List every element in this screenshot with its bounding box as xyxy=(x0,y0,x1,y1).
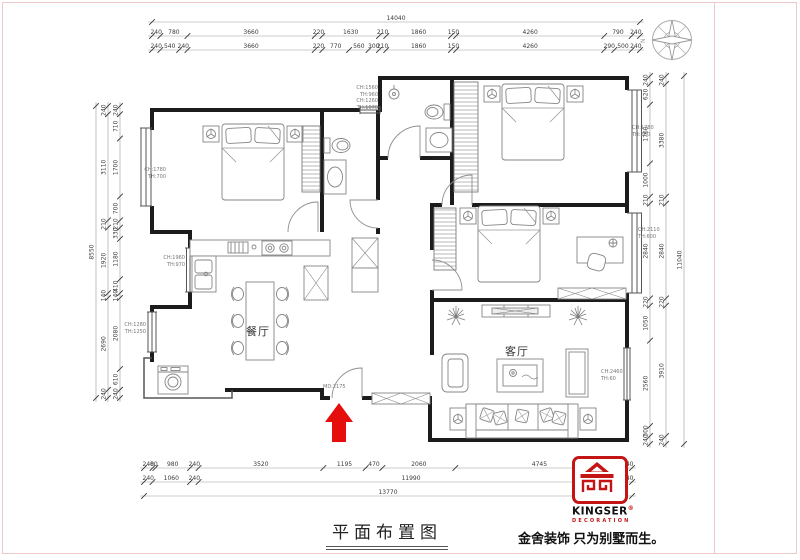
dim-value: 1860 xyxy=(411,29,426,36)
bathroom-middle-group xyxy=(389,85,452,152)
kingser-logo: KINGSER® DECORATION xyxy=(572,456,628,524)
stove-icon xyxy=(262,241,292,255)
annotation-line: CH:1280 xyxy=(122,322,146,329)
dim-row-bottom-0: 240809802403520119547020604745240 xyxy=(140,461,636,471)
dim-value: 14040 xyxy=(386,15,405,22)
dim-row-top-2: 2405402403660220770560300210186015042602… xyxy=(148,43,644,53)
dim-value: 240 xyxy=(143,475,155,482)
dim-value: 780 xyxy=(168,29,180,36)
dim-row-top-0: 14040 xyxy=(148,15,644,25)
dim-value: 210 xyxy=(377,43,389,50)
compass-icon: N xyxy=(640,20,692,60)
dim-value: 2060 xyxy=(411,461,426,468)
logo-mark-icon xyxy=(572,456,628,504)
dim-value: 210 xyxy=(643,194,650,206)
dim-value: 3520 xyxy=(253,461,268,468)
dim-value: 3910 xyxy=(659,363,666,378)
dim-value: 3660 xyxy=(243,29,258,36)
window-annotation-top-middle-window: CH:1560TH:960CH:1260TH:1070 xyxy=(350,85,378,111)
dim-value: 210 xyxy=(659,194,666,206)
dim-value: 11040 xyxy=(677,250,684,269)
dim-value: 240 xyxy=(113,104,120,116)
dim-value: 2690 xyxy=(101,336,108,351)
window-annotation-right-top-window: CH:1780TH:880 xyxy=(632,125,660,138)
window-annotation-kitchen-window: CH:1960TH:970 xyxy=(161,255,185,268)
room-label-dining: 餐厅 xyxy=(246,323,270,339)
dim-row-bottom-2: 13770 xyxy=(140,489,636,499)
dim-value: 330 xyxy=(113,227,120,239)
dim-value: 80 xyxy=(150,461,158,468)
dim-value: 140 xyxy=(113,290,120,302)
dim-value: 220 xyxy=(313,43,325,50)
annotation-line: TH:700 xyxy=(142,174,166,181)
compass-north-label: N xyxy=(640,39,647,44)
dim-value: 240 xyxy=(189,475,201,482)
dim-row-left-2: 240710170070021033011804101402080610240 xyxy=(113,102,123,402)
entry-arrow xyxy=(325,403,353,442)
wardrobe-icon xyxy=(302,126,320,192)
dim-value: 3110 xyxy=(101,159,108,174)
dim-value: 210 xyxy=(377,29,389,36)
dim-value: 240 xyxy=(643,434,650,446)
dim-value: 2560 xyxy=(643,376,650,391)
hall-cabinet-group xyxy=(352,238,378,292)
dim-value: 13770 xyxy=(378,489,397,496)
dim-value: 620 xyxy=(643,88,650,100)
dim-value: 1630 xyxy=(343,29,358,36)
dim-value: 610 xyxy=(113,373,120,385)
window-annotation-dining-window: CH:1280TH:1250 xyxy=(122,322,146,335)
dim-value: 2080 xyxy=(113,326,120,341)
dim-value: 8550 xyxy=(89,244,96,259)
furniture-layer xyxy=(158,82,626,438)
annotation-line: TH:60 xyxy=(601,376,629,383)
entry-group xyxy=(372,393,430,404)
logo-brand-row: KINGSER® xyxy=(572,505,628,518)
dim-row-left-1: 240311021019201402690240 xyxy=(101,102,111,402)
dim-value: 240 xyxy=(150,43,162,50)
logo-subtitle-text: DECORATION xyxy=(572,518,628,524)
dim-value: 240 xyxy=(630,43,642,50)
shower-icon xyxy=(389,89,399,99)
annotation-line: TH:880 xyxy=(632,132,660,139)
annotation-line: TH:970 xyxy=(161,262,185,269)
dim-value: 240 xyxy=(178,43,190,50)
annotation-line: TH:1250 xyxy=(122,329,146,336)
logo-brand-text: KINGSER xyxy=(572,506,628,518)
dim-value: 1700 xyxy=(113,160,120,175)
dim-value: 240 xyxy=(659,74,666,86)
dim-value: 540 xyxy=(164,43,176,50)
room-label-living: 客厅 xyxy=(505,343,529,359)
dim-value: 1195 xyxy=(337,461,352,468)
dim-value: 710 xyxy=(113,120,120,132)
dim-value: 770 xyxy=(330,43,342,50)
dim-row-left-0: 8550 xyxy=(89,102,99,402)
closet-icon xyxy=(454,82,478,192)
plant-icon xyxy=(447,306,465,325)
logo-registered-mark: ® xyxy=(628,505,635,512)
dim-value: 700 xyxy=(113,203,120,215)
dim-value: 2840 xyxy=(643,243,650,258)
living-room-group xyxy=(442,305,596,438)
annotation-line: TH:600 xyxy=(638,234,666,241)
shoe-cabinet-icon xyxy=(372,393,430,404)
dim-row-right-2: 11040 xyxy=(677,72,687,448)
drawing-title: 平面布置图 xyxy=(326,518,448,550)
dim-value: 240 xyxy=(630,29,642,36)
entry-door-label: MD:2175 xyxy=(323,384,346,391)
dim-value: 500 xyxy=(617,43,629,50)
dim-value: 1860 xyxy=(411,43,426,50)
dim-value: 150 xyxy=(448,29,460,36)
dim-value: 240 xyxy=(643,74,650,86)
dim-value: 1050 xyxy=(643,315,650,330)
floor-plan-page: 1404024078036602201630210186015042607902… xyxy=(0,0,800,560)
dim-row-right-1: 240338021028402203910240 xyxy=(659,72,669,448)
annotation-line: CH:1780 xyxy=(142,167,166,174)
dim-value: 3660 xyxy=(243,43,258,50)
dim-value: 240 xyxy=(101,388,108,400)
dim-value: 4260 xyxy=(523,43,538,50)
bedroom-top-left-group xyxy=(203,124,320,200)
dim-value: 470 xyxy=(368,461,380,468)
dim-value: 980 xyxy=(167,461,179,468)
dim-value: 140 xyxy=(101,290,108,302)
annotation-line: CH:1960 xyxy=(161,255,185,262)
dim-value: 150 xyxy=(448,43,460,50)
dim-value: 240 xyxy=(101,104,108,116)
dim-value: 240 xyxy=(113,388,120,400)
dim-value: 4745 xyxy=(532,461,547,468)
wardrobe-icon xyxy=(434,208,456,270)
cabinet-icon xyxy=(558,288,626,299)
dim-value: 790 xyxy=(612,29,624,36)
dim-value: 1180 xyxy=(113,251,120,266)
dim-row-bottom-1: 240106024011990240 xyxy=(140,475,636,485)
balcony-furniture-group xyxy=(158,366,188,394)
dim-value: 220 xyxy=(659,296,666,308)
dim-value: 240 xyxy=(150,29,162,36)
dim-value: 220 xyxy=(643,296,650,308)
dim-value: 290 xyxy=(604,43,616,50)
dim-value: 1000 xyxy=(643,172,650,187)
window-annotation-left-bedroom-window: CH:1780TH:700 xyxy=(142,167,166,180)
bathroom-top-left-group xyxy=(324,138,350,194)
window-annotation-right-middle-window: CH:2110TH:600 xyxy=(638,227,666,240)
brand-slogan: 金舍装饰 只为别墅而生。 xyxy=(518,528,664,547)
dim-row-top-1: 2407803660220163021018601504260790240 xyxy=(148,29,644,39)
dim-value: 240 xyxy=(189,461,201,468)
dim-value: 11990 xyxy=(401,475,420,482)
dim-value: 210 xyxy=(101,218,108,230)
annotation-line: TH:1070 xyxy=(350,105,378,112)
dim-value: 240 xyxy=(659,434,666,446)
bedroom-middle-right-group xyxy=(434,206,626,299)
dim-value: 4260 xyxy=(523,29,538,36)
floor-plan-canvas: 1404024078036602201630210186015042607902… xyxy=(0,0,800,560)
plant-icon xyxy=(569,306,587,325)
window-annotation-living-right-window: CH:2460TH:60 xyxy=(601,369,629,382)
dim-value: 2840 xyxy=(659,243,666,258)
dim-value: 1060 xyxy=(164,475,179,482)
dim-value: 220 xyxy=(313,29,325,36)
bedroom-top-right-group xyxy=(454,82,583,192)
dim-value: 1920 xyxy=(101,253,108,268)
dining-table-icon xyxy=(246,282,274,360)
dim-value: 560 xyxy=(353,43,365,50)
dining-group xyxy=(232,282,289,360)
kitchen-counter xyxy=(190,240,330,256)
